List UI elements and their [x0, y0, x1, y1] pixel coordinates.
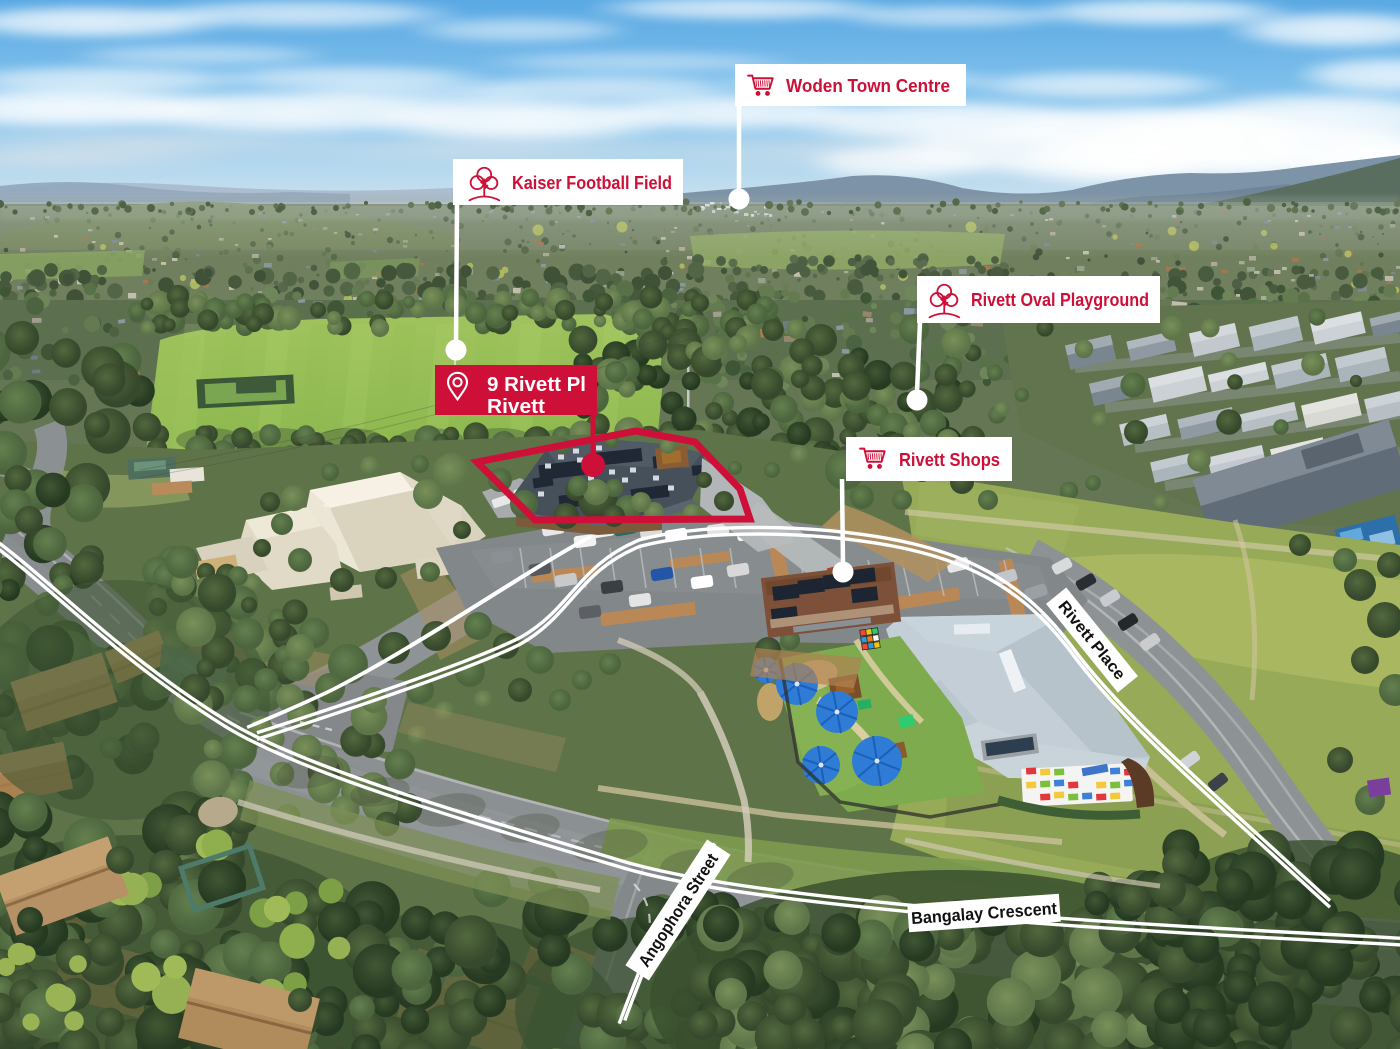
svg-text:Rivett Oval Playground: Rivett Oval Playground: [971, 290, 1149, 310]
svg-text:Kaiser Football Field: Kaiser Football Field: [512, 173, 672, 193]
svg-text:Rivett Shops: Rivett Shops: [899, 450, 1000, 470]
svg-text:Rivett: Rivett: [487, 395, 545, 418]
svg-text:9 Rivett Pl: 9 Rivett Pl: [487, 373, 586, 396]
svg-text:Woden Town Centre: Woden Town Centre: [786, 76, 950, 96]
